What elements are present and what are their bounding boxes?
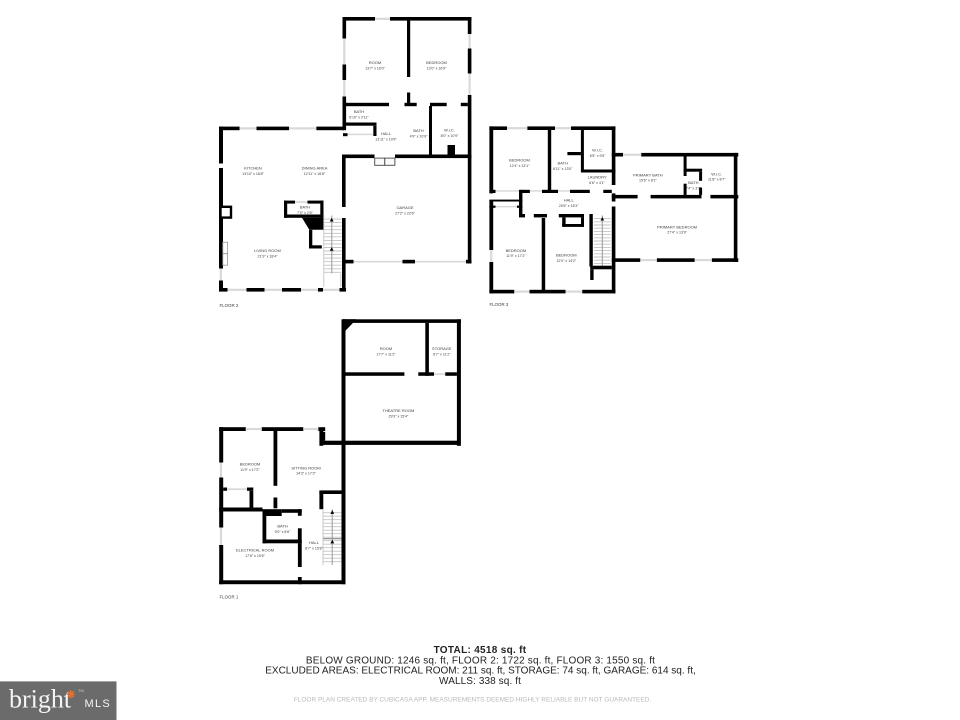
svg-text:MLS: MLS xyxy=(85,698,112,710)
svg-text:9'0" x 6'6": 9'0" x 6'6" xyxy=(275,530,291,534)
svg-text:12'0" x 14'2": 12'0" x 14'2" xyxy=(556,259,576,263)
svg-text:21'9" x 18'4": 21'9" x 18'4" xyxy=(258,254,278,258)
svg-text:6'7" x 11'2": 6'7" x 11'2" xyxy=(433,352,451,356)
svg-text:12'11" x 16'8": 12'11" x 16'8" xyxy=(304,172,326,176)
svg-text:15'6" x 8'1": 15'6" x 8'1" xyxy=(639,179,657,183)
svg-text:HALL: HALL xyxy=(381,131,392,136)
svg-text:FLOOR 1: FLOOR 1 xyxy=(220,595,239,600)
svg-text:14'3" x 17'2": 14'3" x 17'2" xyxy=(296,472,316,476)
svg-text:7'0" x 2'6": 7'0" x 2'6" xyxy=(297,211,313,215)
svg-text:ELECTRICAL ROOM: ELECTRICAL ROOM xyxy=(236,548,274,553)
svg-text:STORAGE: STORAGE xyxy=(432,346,452,351)
svg-text:PRIMARY BEDROOM: PRIMARY BEDROOM xyxy=(657,224,697,229)
svg-text:29'3" x 15'4": 29'3" x 15'4" xyxy=(389,414,409,418)
svg-text:FLOOR PLAN CREATED BY CUBICASA: FLOOR PLAN CREATED BY CUBICASA APP. MEAS… xyxy=(294,696,652,703)
svg-text:6'10" x 2'11": 6'10" x 2'11" xyxy=(349,115,369,119)
svg-text:BATH: BATH xyxy=(688,180,698,185)
svg-text:13'10" x 16'8": 13'10" x 16'8" xyxy=(242,172,264,176)
svg-text:11'9" x 17'2": 11'9" x 17'2" xyxy=(240,468,260,472)
svg-text:17'6" x 15'6": 17'6" x 15'6" xyxy=(245,554,265,558)
svg-text:ROOM: ROOM xyxy=(380,346,392,351)
svg-text:BEDROOM: BEDROOM xyxy=(506,248,527,253)
svg-text:6'5" x 9'5": 6'5" x 9'5" xyxy=(590,154,606,158)
svg-text:BEDROOM: BEDROOM xyxy=(509,158,530,163)
svg-text:6'6" x 4'1": 6'6" x 4'1" xyxy=(589,181,605,185)
svg-text:PRIMARY BATH: PRIMARY BATH xyxy=(633,172,663,177)
svg-text:W.I.C.: W.I.C. xyxy=(444,128,455,133)
svg-text:BATH: BATH xyxy=(300,205,310,210)
svg-text:FLOOR 3: FLOOR 3 xyxy=(490,302,509,307)
svg-text:4'9" x 10'9": 4'9" x 10'9" xyxy=(410,134,428,138)
svg-text:11'9" x 17'2": 11'9" x 17'2" xyxy=(506,254,526,258)
svg-text:17'7" x 11'2": 17'7" x 11'2" xyxy=(376,352,396,356)
svg-text:bright: bright xyxy=(9,685,72,714)
svg-text:27'4" x 13'9": 27'4" x 13'9" xyxy=(667,231,687,235)
svg-text:DINING AREA: DINING AREA xyxy=(302,166,328,171)
svg-text:BEDROOM: BEDROOM xyxy=(240,462,261,467)
svg-text:HALL: HALL xyxy=(309,540,320,545)
svg-text:W.I.C.: W.I.C. xyxy=(592,148,603,153)
svg-text:11'8" x 8'7": 11'8" x 8'7" xyxy=(708,178,726,182)
svg-text:12'4" x 13'1": 12'4" x 13'1" xyxy=(510,164,530,168)
svg-text:BEDROOM: BEDROOM xyxy=(556,253,577,258)
svg-text:ROOM: ROOM xyxy=(369,60,381,65)
svg-text:BATH: BATH xyxy=(413,128,423,133)
svg-text:27'2" x 22'6": 27'2" x 22'6" xyxy=(395,211,415,215)
svg-text:13'0" x 16'9": 13'0" x 16'9" xyxy=(427,66,447,70)
svg-text:BEDROOM: BEDROOM xyxy=(426,60,447,65)
svg-text:20'6" x 16'3": 20'6" x 16'3" xyxy=(559,204,579,208)
svg-text:BATH: BATH xyxy=(277,524,287,529)
svg-text:6'11" x 13'0": 6'11" x 13'0" xyxy=(553,167,573,171)
svg-text:TM: TM xyxy=(78,688,84,693)
svg-text:FLOOR 2: FLOOR 2 xyxy=(220,303,239,308)
svg-text:KITCHEN: KITCHEN xyxy=(244,166,262,171)
svg-text:BATH: BATH xyxy=(354,109,364,114)
svg-text:TOTAL: 4518 sq. ft: TOTAL: 4518 sq. ft xyxy=(434,645,527,656)
svg-text:8'7" x 15'8": 8'7" x 15'8" xyxy=(305,546,323,550)
svg-text:HALL: HALL xyxy=(564,198,575,203)
svg-text:13'11" x 10'9": 13'11" x 10'9" xyxy=(375,137,397,141)
svg-text:THEATRE ROOM: THEATRE ROOM xyxy=(382,408,414,413)
svg-text:8'0" x 10'9": 8'0" x 10'9" xyxy=(441,134,459,138)
svg-text:SITTING ROOM: SITTING ROOM xyxy=(291,465,320,470)
svg-text:BATH: BATH xyxy=(558,161,568,166)
svg-text:7'4" x 3'7": 7'4" x 3'7" xyxy=(685,186,701,190)
svg-text:LIVING ROOM: LIVING ROOM xyxy=(254,248,281,253)
svg-text:W.I.C.: W.I.C. xyxy=(711,171,722,176)
svg-text:WALLS: 338 sq. ft: WALLS: 338 sq. ft xyxy=(439,676,521,687)
svg-text:GARAGE: GARAGE xyxy=(396,205,413,210)
svg-text:LAUNDRY: LAUNDRY xyxy=(588,175,607,180)
svg-text:13'7" x 16'0": 13'7" x 16'0" xyxy=(365,66,385,70)
